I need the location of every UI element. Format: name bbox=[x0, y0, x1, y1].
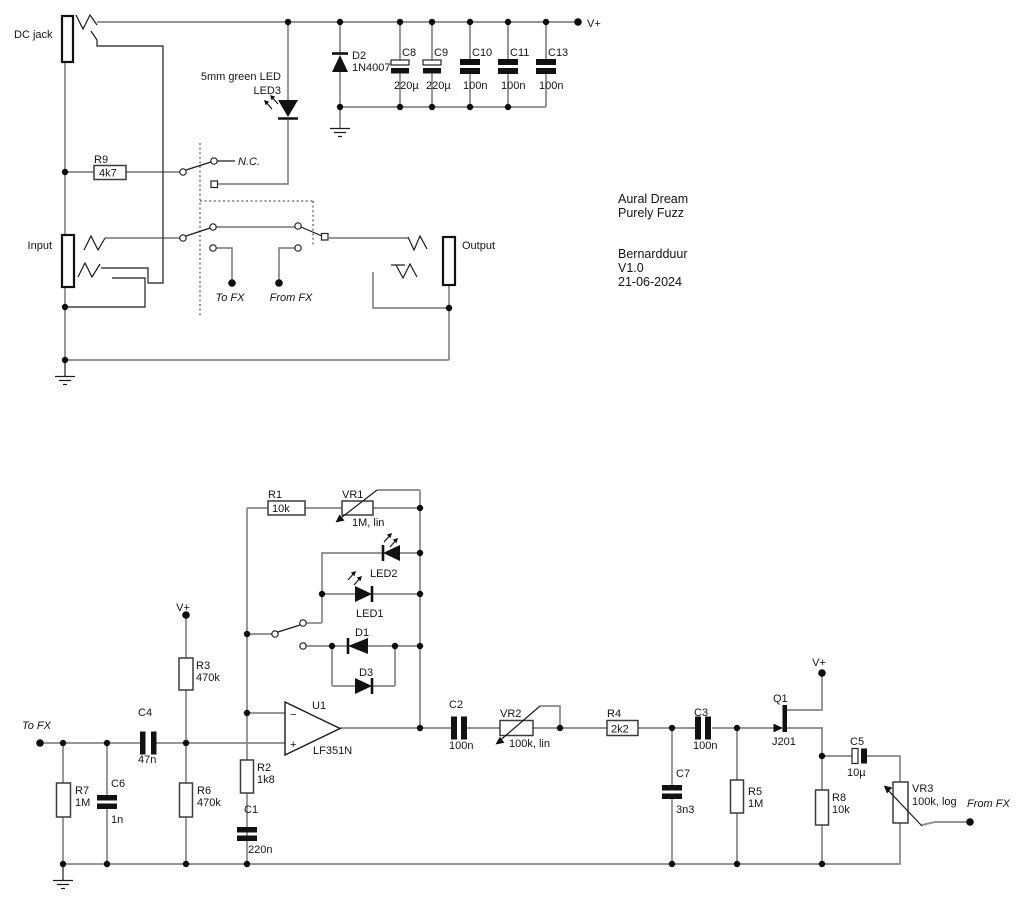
R4-value: 2k2 bbox=[611, 724, 629, 736]
capacitor-C4: C4 47n bbox=[138, 707, 157, 766]
clipping-switch bbox=[272, 620, 306, 649]
input-jack: Input bbox=[28, 235, 105, 287]
vplus-terminal-q1: V+ bbox=[812, 657, 826, 677]
capacitor-C6: C6 1n bbox=[97, 778, 125, 826]
input-ring-contact bbox=[78, 263, 100, 277]
C4-value: 47n bbox=[138, 754, 156, 766]
ground-symbol-power bbox=[330, 129, 350, 137]
title-block: Aural Dream Purely Fuzz Bernardduur V1.0… bbox=[618, 192, 688, 289]
capacitor-C3: C3 100n bbox=[693, 707, 717, 752]
C11-ref: C11 bbox=[510, 47, 529, 59]
R7-ref: R7 bbox=[75, 785, 89, 797]
D2-value: 1N4007 bbox=[352, 62, 391, 74]
VR2-value: 100k, lin bbox=[509, 738, 550, 750]
C10-ref: C10 bbox=[472, 47, 492, 59]
VR3-ref: VR3 bbox=[912, 783, 933, 795]
R5-value: 1M bbox=[748, 798, 763, 810]
footswitch-3pdt: N.C. bbox=[180, 143, 328, 316]
nc-label: N.C. bbox=[238, 156, 260, 168]
C5-value: 10µ bbox=[847, 767, 866, 779]
output-label: Output bbox=[462, 240, 495, 252]
C13-value: 100n bbox=[539, 80, 563, 92]
from-fx-terminal-bottom: From FX bbox=[966, 798, 1010, 826]
Q1-ref: Q1 bbox=[773, 693, 788, 705]
VR3-value: 100k, log bbox=[912, 796, 957, 808]
output-ring-contact bbox=[396, 264, 417, 278]
led-LED2: LED2 bbox=[370, 533, 400, 580]
D2-ref: D2 bbox=[352, 50, 366, 62]
dc-jack-label: DC jack bbox=[14, 29, 53, 41]
R2-ref: R2 bbox=[257, 762, 271, 774]
R5-ref: R5 bbox=[748, 786, 762, 798]
schematic-canvas: DC jack R9 4k7 5mm green LED LED3 D2 1N4… bbox=[0, 0, 1024, 914]
to-fx-terminal-top: To FX bbox=[216, 279, 246, 304]
capacitor-C5: C5 10µ bbox=[847, 736, 867, 779]
title-model: Purely Fuzz bbox=[618, 206, 684, 220]
dc-jack: DC jack bbox=[14, 15, 97, 62]
output-tip-contact bbox=[408, 236, 427, 250]
capacitor-C11: C11 100n bbox=[498, 47, 529, 92]
R1-ref: R1 bbox=[268, 489, 282, 501]
diode-D1: D1 bbox=[348, 627, 369, 654]
R7-value: 1M bbox=[75, 797, 90, 809]
C9-value: 220µ bbox=[426, 80, 451, 92]
vplus-terminal-top: V+ bbox=[574, 18, 601, 30]
capacitor-C8: C8 220µ bbox=[391, 47, 419, 92]
output-jack: Output bbox=[391, 236, 495, 285]
capacitor-C1: C1 220n bbox=[237, 804, 272, 856]
R6-ref: R6 bbox=[197, 785, 211, 797]
resistor-R1: R1 10k bbox=[268, 489, 305, 515]
R4-ref: R4 bbox=[607, 708, 621, 720]
LED3-emission-arrows bbox=[264, 95, 278, 109]
LED1-ref: LED1 bbox=[356, 608, 384, 620]
capacitor-C13: C13 100n bbox=[536, 47, 568, 92]
diode-D3: D3 bbox=[355, 667, 373, 694]
C6-ref: C6 bbox=[111, 778, 125, 790]
R6-value: 470k bbox=[197, 797, 221, 809]
C1-value: 220n bbox=[248, 844, 272, 856]
vplus-terminal-r3: V+ bbox=[176, 602, 190, 619]
potentiometer-VR1: VR1 1M, lin bbox=[336, 489, 385, 529]
VR1-ref: VR1 bbox=[342, 489, 363, 501]
resistor-R7: R7 1M bbox=[57, 783, 91, 817]
title-version: V1.0 bbox=[618, 261, 644, 275]
C11-value: 100n bbox=[501, 80, 525, 92]
R8-ref: R8 bbox=[832, 792, 846, 804]
from-fx-label-top: From FX bbox=[270, 292, 313, 304]
C3-ref: C3 bbox=[694, 707, 708, 719]
D1-ref: D1 bbox=[355, 627, 369, 639]
C8-ref: C8 bbox=[402, 47, 416, 59]
resistor-R8: R8 10k bbox=[816, 790, 851, 825]
U1-plus-input: + bbox=[290, 739, 296, 751]
jfet-Q1: Q1 J201 bbox=[772, 693, 796, 748]
C13-ref: C13 bbox=[548, 47, 568, 59]
title-maker: Aural Dream bbox=[618, 192, 688, 206]
R1-value: 10k bbox=[272, 503, 290, 515]
capacitor-C7: C7 3n3 bbox=[662, 768, 694, 816]
from-fx-terminal-top: From FX bbox=[270, 279, 313, 304]
VR1-value: 1M, lin bbox=[352, 517, 384, 529]
R3-ref: R3 bbox=[196, 660, 210, 672]
C7-value: 3n3 bbox=[676, 804, 694, 816]
title-author: Bernardduur bbox=[618, 247, 688, 261]
from-fx-label-bottom: From FX bbox=[967, 798, 1010, 810]
schematic-page: DC jack R9 4k7 5mm green LED LED3 D2 1N4… bbox=[0, 0, 1024, 914]
resistor-R3: R3 470k bbox=[179, 658, 220, 690]
vplus-label-q1: V+ bbox=[812, 657, 826, 669]
R8-value: 10k bbox=[832, 804, 850, 816]
R9-ref: R9 bbox=[94, 154, 108, 166]
resistor-R4: R4 2k2 bbox=[607, 708, 638, 736]
input-tip-contact bbox=[84, 236, 105, 250]
to-fx-label-top: To FX bbox=[216, 292, 246, 304]
R2-value: 1k8 bbox=[257, 774, 275, 786]
LED2-ref: LED2 bbox=[370, 568, 398, 580]
LED3-ref: LED3 bbox=[253, 85, 281, 97]
resistor-R6: R6 470k bbox=[180, 783, 222, 817]
input-label: Input bbox=[28, 240, 52, 252]
capacitor-C9: C9 220µ bbox=[423, 47, 451, 92]
D3-ref: D3 bbox=[359, 667, 373, 679]
capacitor-C2: C2 100n bbox=[449, 699, 473, 752]
diode-D2: D2 1N4007 bbox=[332, 50, 391, 74]
R3-value: 470k bbox=[196, 672, 220, 684]
to-fx-label-bottom: To FX bbox=[22, 720, 52, 732]
resistor-R5: R5 1M bbox=[731, 780, 764, 813]
vplus-label-r3: V+ bbox=[176, 602, 190, 614]
C10-value: 100n bbox=[463, 80, 487, 92]
capacitor-C10: C10 100n bbox=[460, 47, 492, 92]
C1-ref: C1 bbox=[244, 804, 258, 816]
C2-ref: C2 bbox=[449, 699, 463, 711]
vplus-label-top: V+ bbox=[587, 18, 601, 30]
potentiometer-VR3: VR3 100k, log bbox=[884, 782, 957, 826]
C6-value: 1n bbox=[111, 814, 123, 826]
resistor-R9: R9 4k7 bbox=[94, 154, 126, 180]
C5-ref: C5 bbox=[850, 736, 864, 748]
LED3-note: 5mm green LED bbox=[201, 71, 281, 83]
LED1-emission-arrows bbox=[348, 571, 362, 585]
ground-symbol-bottom bbox=[53, 864, 73, 889]
C4-ref: C4 bbox=[138, 707, 152, 719]
C7-ref: C7 bbox=[676, 768, 690, 780]
U1-ref: U1 bbox=[312, 700, 326, 712]
C3-value: 100n bbox=[693, 740, 717, 752]
R9-value: 4k7 bbox=[99, 168, 117, 180]
resistor-R2: R2 1k8 bbox=[241, 760, 275, 793]
C2-value: 100n bbox=[449, 740, 473, 752]
C9-ref: C9 bbox=[434, 47, 448, 59]
title-date: 21-06-2024 bbox=[618, 275, 682, 289]
led-LED3: 5mm green LED LED3 bbox=[201, 71, 298, 119]
Q1-value: J201 bbox=[772, 736, 796, 748]
U1-value: LF351N bbox=[313, 745, 352, 757]
ground-symbol-io bbox=[55, 360, 75, 385]
dc-jack-tip-contact bbox=[76, 15, 97, 29]
C8-value: 220µ bbox=[394, 80, 419, 92]
U1-minus-input: − bbox=[290, 709, 296, 721]
VR2-ref: VR2 bbox=[500, 708, 521, 720]
LED2-emission-arrows bbox=[384, 533, 398, 547]
